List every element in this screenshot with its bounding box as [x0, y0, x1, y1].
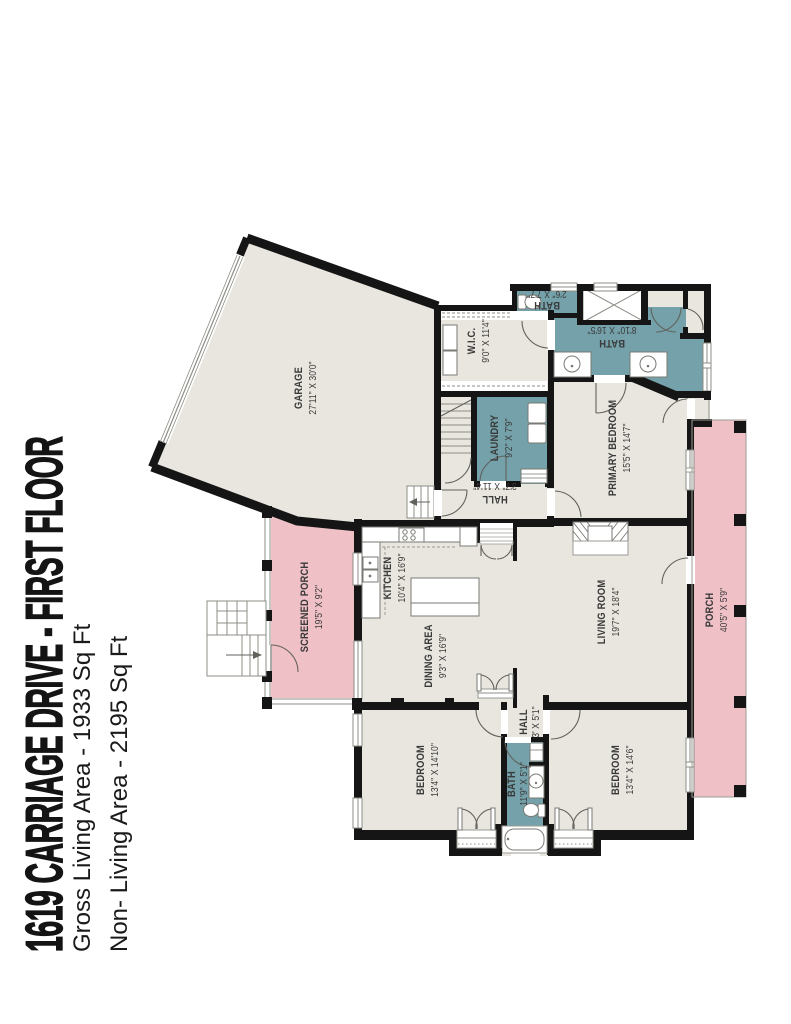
svg-text:9'2" X 7'9": 9'2" X 7'9"	[503, 418, 514, 457]
svg-text:11'9" X 5'1": 11'9" X 5'1"	[518, 762, 529, 806]
svg-text:19'7" X 18'4": 19'7" X 18'4"	[610, 587, 621, 636]
svg-text:HALL: HALL	[482, 493, 508, 505]
svg-text:BATH: BATH	[599, 337, 625, 349]
svg-text:LIVING ROOM: LIVING ROOM	[596, 580, 608, 645]
svg-text:15'5" X 14'7": 15'5" X 14'7"	[621, 423, 632, 472]
svg-text:8'10" X 16'5": 8'10" X 16'5"	[587, 325, 636, 336]
svg-text:LAUNDRY: LAUNDRY	[489, 415, 501, 461]
svg-text:13'4" X 14'6": 13'4" X 14'6"	[624, 745, 635, 794]
svg-text:DINING AREA: DINING AREA	[423, 624, 435, 688]
svg-text:1619 CARRIAGE DRIVE - FIRST FL: 1619 CARRIAGE DRIVE - FIRST FLOOR	[15, 436, 73, 952]
svg-text:PORCH: PORCH	[704, 593, 716, 628]
svg-text:BATH: BATH	[506, 771, 518, 797]
svg-text:PRIMARY BEDROOM: PRIMARY BEDROOM	[607, 400, 619, 496]
svg-text:27'11" X 30'0": 27'11" X 30'0"	[307, 361, 318, 414]
svg-text:W.I.C.: W.I.C.	[466, 328, 478, 354]
svg-text:SCREENED PORCH: SCREENED PORCH	[299, 562, 311, 653]
svg-text:Non- Living Area - 2195 Sq Ft: Non- Living Area - 2195 Sq Ft	[106, 635, 133, 952]
svg-text:19'5" X 9'2": 19'5" X 9'2"	[313, 585, 324, 629]
svg-text:HALL: HALL	[518, 709, 530, 735]
svg-text:GARAGE: GARAGE	[293, 367, 305, 409]
svg-text:BEDROOM: BEDROOM	[610, 745, 622, 795]
svg-text:2'6" X 7'7": 2'6" X 7'7"	[527, 289, 566, 300]
svg-text:3'7" X 11'4": 3'7" X 11'4"	[473, 481, 517, 492]
svg-text:9'3" X 16'9": 9'3" X 16'9"	[437, 634, 448, 678]
svg-text:40'5" X 5'9": 40'5" X 5'9"	[718, 588, 729, 632]
svg-text:10'4" X 16'9": 10'4" X 16'9"	[396, 553, 407, 602]
svg-text:BEDROOM: BEDROOM	[415, 745, 427, 795]
svg-text:KITCHEN: KITCHEN	[382, 557, 394, 600]
svg-text:Gross Living Area - 1933 Sq Ft: Gross Living Area - 1933 Sq Ft	[69, 624, 96, 952]
svg-text:9'0" X 11'4": 9'0" X 11'4"	[480, 319, 491, 363]
svg-text:3' X 5'1": 3' X 5'1"	[530, 706, 541, 738]
svg-text:13'4" X 14'10": 13'4" X 14'10"	[429, 743, 440, 797]
